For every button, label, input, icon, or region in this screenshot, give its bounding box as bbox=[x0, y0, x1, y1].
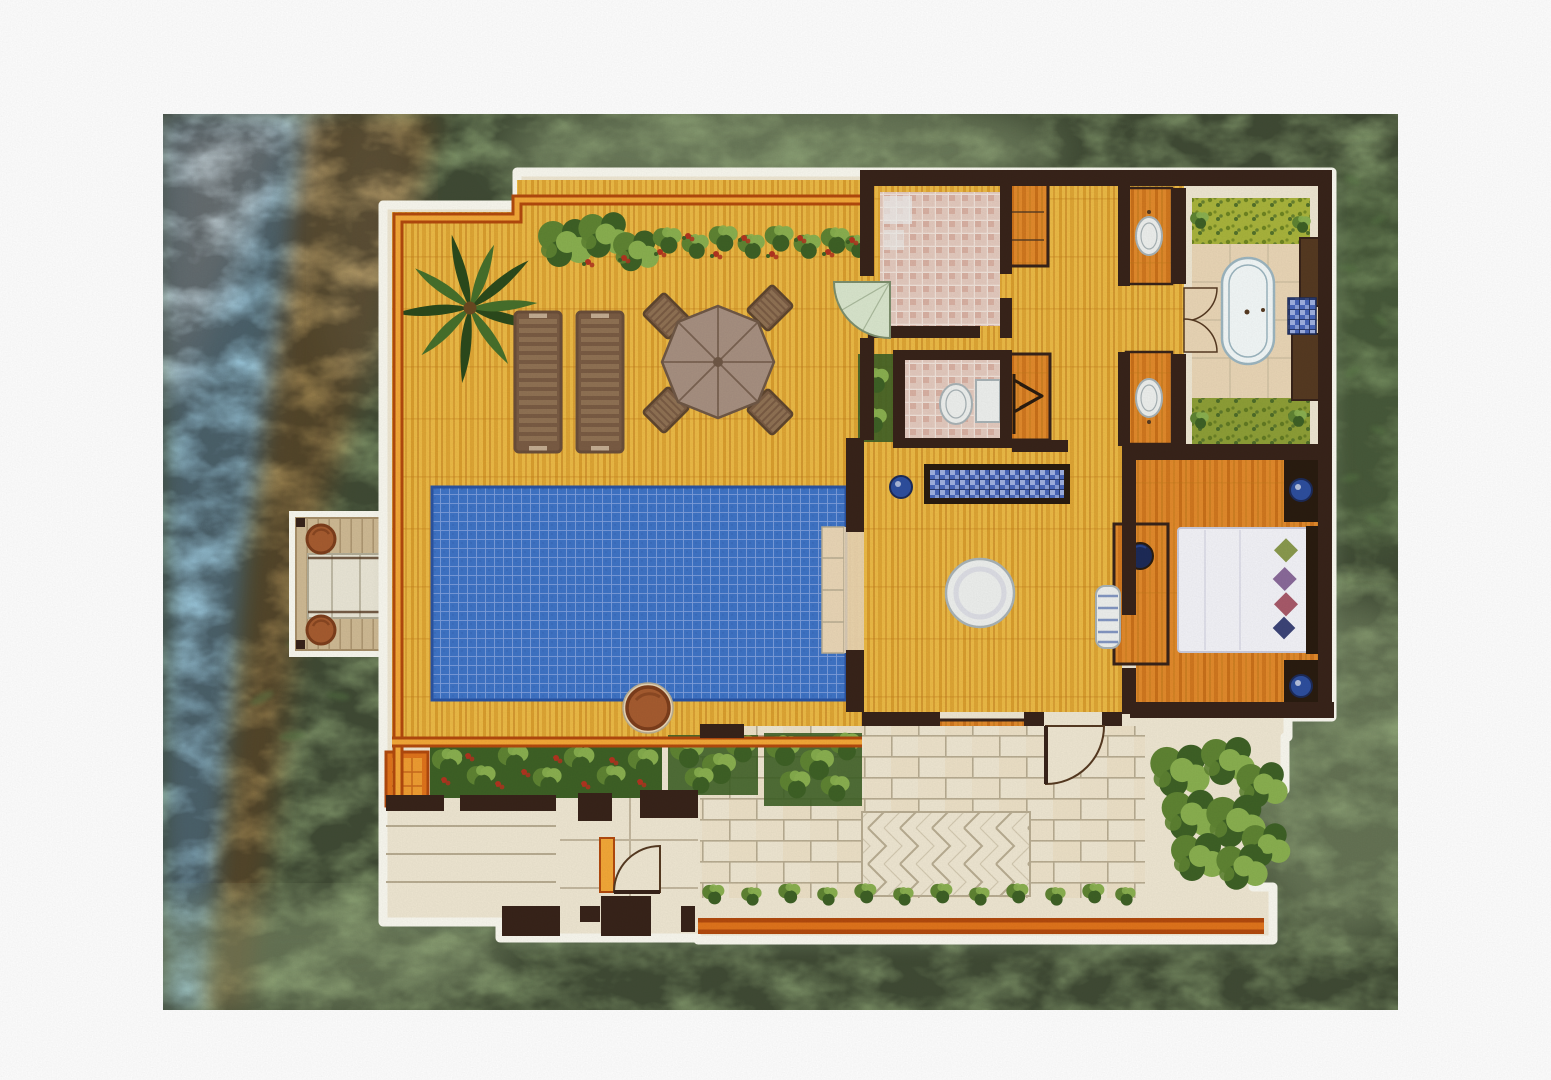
floor-plan-illustration bbox=[0, 0, 1551, 1080]
villa-floor-plan-page bbox=[0, 0, 1551, 1080]
scan-grain-overlay bbox=[0, 0, 1551, 1080]
